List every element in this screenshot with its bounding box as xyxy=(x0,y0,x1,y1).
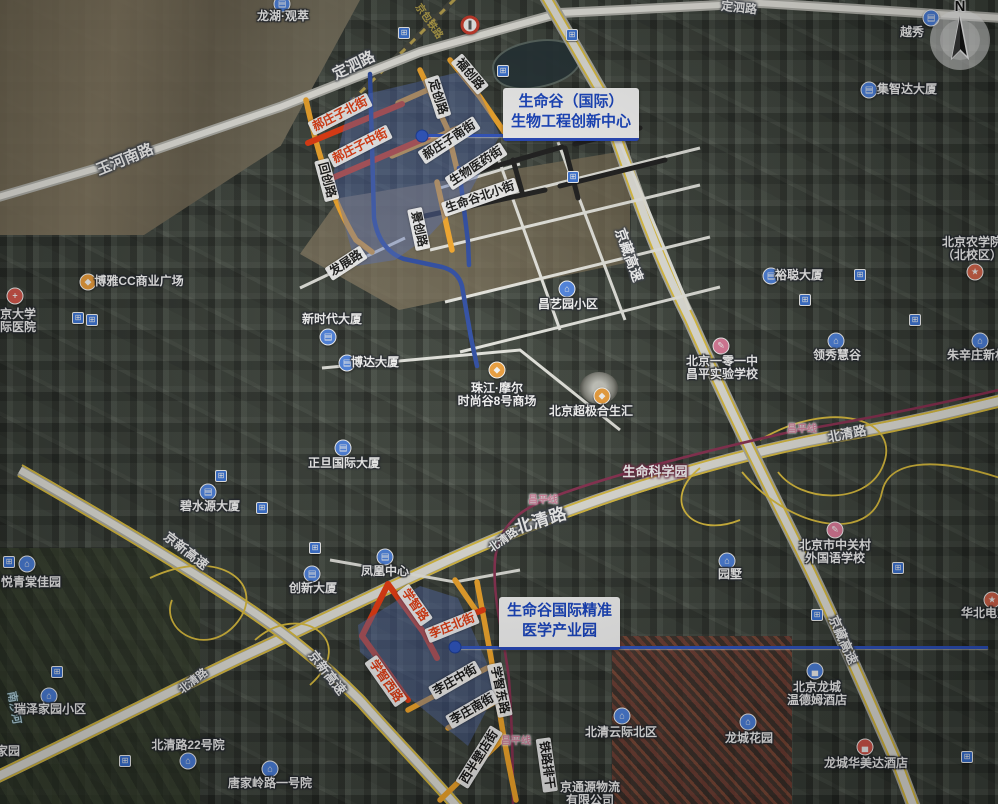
callout-anchor-dot xyxy=(416,130,429,143)
transit-station-icon[interactable]: ⊞ xyxy=(309,542,321,554)
transit-station-icon[interactable]: ⊞ xyxy=(854,269,866,281)
shop-icon[interactable]: ◆ xyxy=(594,388,611,405)
building-icon[interactable]: ▤ xyxy=(200,484,217,501)
building-icon[interactable]: ▤ xyxy=(763,268,780,285)
transit-station-icon[interactable]: ⊞ xyxy=(497,65,509,77)
callout-line: 生命谷（国际） xyxy=(511,92,631,112)
compass-north-label: N xyxy=(926,0,994,15)
transit-station-icon[interactable]: ⊞ xyxy=(909,314,921,326)
house-icon[interactable]: ⌂ xyxy=(828,333,845,350)
callout-line: 生命谷国际精准 xyxy=(507,601,612,621)
shop-icon[interactable]: ◆ xyxy=(489,362,506,379)
house-icon[interactable]: ⌂ xyxy=(41,688,58,705)
transit-station-icon[interactable]: ⊞ xyxy=(119,755,131,767)
transit-station-icon[interactable]: ⊞ xyxy=(567,171,579,183)
satellite-map-canvas[interactable]: 生命谷（国际） 生物工程创新中心 生命谷国际精准 医学产业园 玉河南路定泗路定泗… xyxy=(0,0,998,804)
traffic-sign-icon xyxy=(461,16,480,35)
transit-station-icon[interactable]: ⊞ xyxy=(215,470,227,482)
callout-leader-line xyxy=(422,134,506,137)
compass[interactable]: N xyxy=(926,0,994,76)
transit-station-icon[interactable]: ⊞ xyxy=(961,751,973,763)
building-icon[interactable]: ▤ xyxy=(320,329,337,346)
shop-icon[interactable]: ◆ xyxy=(80,274,97,291)
house-icon[interactable]: ⌂ xyxy=(559,281,576,298)
house-icon[interactable]: ⌂ xyxy=(614,708,631,725)
house-icon[interactable]: ⌂ xyxy=(19,556,36,573)
hotel-red-icon[interactable]: ▄ xyxy=(857,739,874,756)
transit-station-icon[interactable]: ⊞ xyxy=(811,609,823,621)
transit-station-icon[interactable]: ⊞ xyxy=(256,502,268,514)
callout-line: 生物工程创新中心 xyxy=(511,112,631,132)
transit-station-icon[interactable]: ⊞ xyxy=(72,312,84,324)
transit-station-icon[interactable]: ⊞ xyxy=(398,27,410,39)
building-icon[interactable]: ▤ xyxy=(377,549,394,566)
transit-station-icon[interactable]: ⊞ xyxy=(566,29,578,41)
transit-station-icon[interactable]: ⊞ xyxy=(892,562,904,574)
callout-precision-medicine-park: 生命谷国际精准 医学产业园 xyxy=(499,597,620,650)
building-icon[interactable]: ▤ xyxy=(339,355,356,372)
roads-layer xyxy=(0,0,998,804)
school-red-icon[interactable]: ★ xyxy=(984,592,998,609)
callout-bioengineering-center: 生命谷（国际） 生物工程创新中心 xyxy=(503,88,639,141)
house-icon[interactable]: ⌂ xyxy=(180,753,197,770)
school-pink-icon[interactable]: ✎ xyxy=(827,522,844,539)
building-icon[interactable]: ▤ xyxy=(335,440,352,457)
transit-station-icon[interactable]: ⊞ xyxy=(3,556,15,568)
transit-station-icon[interactable]: ⊞ xyxy=(51,666,63,678)
hotel-icon[interactable]: ▄ xyxy=(807,663,824,680)
building-icon[interactable]: ▤ xyxy=(304,566,321,583)
school-red-icon[interactable]: ★ xyxy=(967,264,984,281)
house-icon[interactable]: ⌂ xyxy=(972,333,989,350)
callout-anchor-dot xyxy=(449,641,462,654)
house-icon[interactable]: ⌂ xyxy=(262,761,279,778)
school-pink-icon[interactable]: ✎ xyxy=(713,338,730,355)
house-icon[interactable]: ⌂ xyxy=(719,553,736,570)
transit-station-icon[interactable]: ⊞ xyxy=(799,294,811,306)
hospital-icon[interactable]: + xyxy=(7,288,24,305)
transit-station-icon[interactable]: ⊞ xyxy=(86,314,98,326)
building-icon[interactable]: ▤ xyxy=(861,82,878,99)
callout-line: 医学产业园 xyxy=(507,621,612,641)
house-icon[interactable]: ⌂ xyxy=(740,714,757,731)
